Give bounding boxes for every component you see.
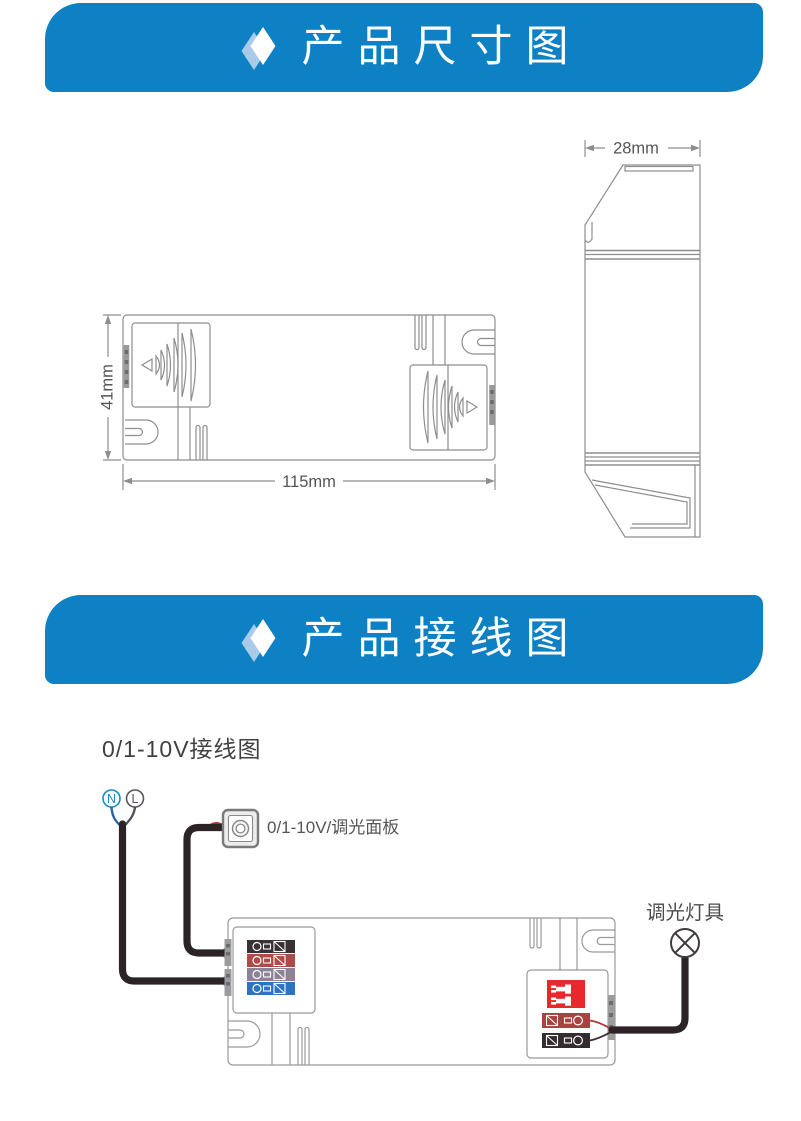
cable-nub-left: [124, 345, 130, 388]
section-title-dimensions: 产品尺寸图: [302, 26, 582, 69]
output-warning-label: [547, 980, 585, 1008]
width-dimension-label: 115mm: [282, 473, 336, 491]
height-dimension: 41mm: [98, 315, 121, 460]
height-dimension-label: 41mm: [98, 364, 116, 410]
terminal-cover-left: [132, 323, 210, 407]
diamond-icon: [240, 616, 282, 664]
input-terminal-row-neutral: [247, 982, 295, 995]
crossed-circle-lamp-icon: [671, 929, 699, 957]
cable-nub-right: [489, 385, 495, 425]
output-terminal-row-minus: [542, 1033, 590, 1048]
mains-cable: [123, 824, 225, 981]
live-label: L: [132, 792, 139, 806]
knob-panel-icon: [223, 810, 258, 847]
input-terminal-row-dim-plus: [247, 940, 295, 953]
lamp-cable: [612, 958, 685, 1030]
mounting-slots-bottom-left: [125, 407, 207, 460]
input-terminal-row-dim-minus: [247, 954, 295, 967]
width-dimension: 115mm: [123, 464, 495, 491]
product-spec-page: 产品尺寸图: [0, 0, 801, 1121]
side-profile-outline: [585, 165, 700, 537]
top-view-drawing: 41mm 115mm: [95, 300, 515, 495]
panel-label: 0/1-10V/调光面板: [267, 818, 399, 837]
live-badge: L: [127, 790, 144, 807]
diamond-icon: [240, 24, 282, 72]
section-banner-wiring: 产品接线图: [45, 595, 763, 684]
terminal-cover-right: [410, 365, 487, 450]
driver-body-outline: [123, 315, 495, 460]
input-terminal-row-live: [247, 968, 295, 981]
output-terminal-row-plus: [542, 1013, 590, 1028]
neutral-badge: N: [103, 790, 120, 807]
depth-dimension: 28mm: [585, 140, 700, 158]
mounting-slots-top-right: [415, 315, 495, 365]
depth-dimension-label: 28mm: [613, 140, 659, 158]
section-title-wiring: 产品接线图: [302, 618, 582, 661]
lamp-label: 调光灯具: [646, 902, 724, 924]
wiring-subheading: 0/1-10V接线图: [102, 730, 262, 764]
wiring-diagram: N L 0/1-10V/调光面板: [95, 780, 801, 1115]
side-view-drawing: 28mm: [575, 135, 710, 545]
dimmer-cable: [187, 828, 227, 954]
section-banner-dimensions: 产品尺寸图: [45, 3, 763, 92]
neutral-label: N: [107, 792, 116, 806]
